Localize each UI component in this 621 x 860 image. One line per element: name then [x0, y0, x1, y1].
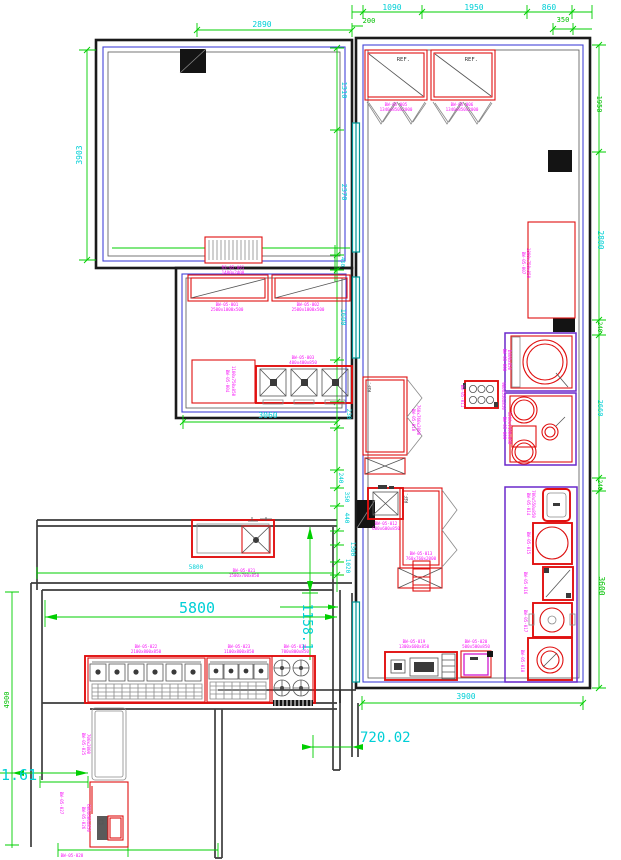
dim-3900: 3900 [456, 692, 475, 701]
dim-1600: 1600 [339, 309, 347, 326]
tag-dishtable: BW-05-016 [523, 572, 528, 595]
dim-240-b: 240 [596, 480, 603, 491]
dim-350-top: 350 [557, 16, 570, 24]
room-mid-left-wall [176, 268, 352, 418]
tag-smallunit-2: 600x600x850 [86, 804, 91, 832]
round-worktable [533, 523, 572, 564]
room-upper-left-wall [96, 40, 352, 268]
ref-label-2: REF. [465, 57, 478, 63]
refrigerator-2: REF. [431, 50, 495, 124]
walls [31, 38, 590, 858]
column-right-wall-2 [553, 318, 575, 332]
floor-plan-svg: 2890 1090 1950 860 200 350 3903 1310 237… [0, 0, 621, 860]
tag-sinkl-2: 1500x700x850 [229, 573, 260, 578]
dim-2890: 2890 [252, 20, 271, 29]
tag-wok-2: 1200x1100x850 [507, 412, 512, 445]
tag-unita-2: 1300x600x850 [399, 644, 430, 649]
dim-860: 860 [542, 3, 557, 12]
tag-bottom-2: BW-05-028 [61, 853, 84, 858]
wok-range [505, 393, 576, 465]
tag-refmid2-2: 760x760x2000 [406, 556, 437, 561]
dim-1950-right: 1950 [595, 96, 603, 113]
dim-450: 450 [339, 257, 345, 267]
tag-smallunit-1: BW-05-026 [81, 807, 86, 830]
bottom-unit-b [461, 651, 493, 677]
dim-2370: 2370 [340, 184, 348, 201]
dim-240-mid: 240 [337, 473, 344, 484]
tag-wok-1: BW-05-009 [502, 417, 507, 440]
equipment-mid-left [188, 237, 352, 404]
column-right-wall-1 [548, 150, 572, 172]
gas-range-round [272, 656, 313, 706]
dim-3060: 3060 [258, 411, 277, 420]
dim-440: 440 [343, 513, 350, 524]
tag-sinkmid-2: 600x600x850 [372, 526, 400, 531]
dim-1090: 1090 [382, 3, 401, 12]
range-6-burner [88, 658, 205, 702]
equipment-tags: RS-05-001 1400x2400 BW-05-001 2500x1000x… [59, 102, 536, 858]
dim-200: 200 [363, 17, 376, 25]
cook-line [85, 656, 315, 706]
dim-1310: 1310 [340, 82, 348, 99]
range-4-burner [207, 658, 270, 702]
dim-240-a: 240 [596, 322, 603, 333]
roller-shutter [205, 237, 262, 263]
tag-cook2-2: 1100x800x850 [224, 649, 255, 654]
tag-sinkr-2: 700x550x850 [531, 490, 536, 518]
dim-230: 230 [345, 409, 352, 420]
dim-5800-big: 5800 [179, 599, 215, 617]
tag-refmid-2: 760x760x2000 [416, 405, 421, 436]
sink-mid [368, 485, 403, 519]
room-upper-right-wall [356, 38, 590, 688]
tag-cook3-2: 700x800x850 [281, 649, 309, 654]
dim-5800-small: 5800 [189, 564, 204, 571]
tag-roundtable: BW-05-015 [526, 532, 531, 555]
tag-shutter-2: 1400x2400 [222, 270, 245, 275]
ref-label-4: REF. [404, 493, 409, 503]
dim-4900: 4900 [3, 692, 11, 709]
dim-3903: 3903 [75, 145, 84, 164]
dim-1300: 1300 [349, 542, 356, 557]
dim-2660: 2660 [596, 400, 604, 417]
refrigerator-1: REF. [365, 50, 427, 124]
equipment-upper-right: REF. REF. [363, 50, 577, 682]
tag-hood1-2: 2500x1000x500 [211, 307, 244, 312]
sink-lower-left [192, 517, 274, 557]
column-top-left [180, 49, 206, 73]
burner-square-3 [322, 369, 348, 404]
tag-kettle-1: BW-05-008 [502, 349, 507, 372]
exhaust-hood-1 [188, 275, 268, 301]
sink-right [543, 489, 570, 521]
tag-prep-2: 1100x750x850 [231, 366, 236, 397]
tag-hood2-2: 2500x1000x500 [292, 307, 325, 312]
bottom-unit-a [385, 652, 457, 680]
tag-doorl-2: 700x2000 [86, 734, 91, 755]
tag-worktable-1: BW-05-007 [521, 252, 526, 275]
floor-plan-canvas: 2890 1090 1950 860 200 350 3903 1310 237… [0, 0, 621, 860]
tall-cabinet [92, 708, 126, 780]
tag-sinkr-1: BW-05-014 [526, 493, 531, 516]
mixer [529, 603, 575, 637]
dim-1950-top: 1950 [464, 3, 483, 12]
burner-square-1 [260, 369, 286, 404]
stockpot-burners [256, 366, 352, 404]
dim-3600: 3600 [597, 576, 606, 595]
dim-1020: 1020 [344, 559, 351, 574]
tag-machine: BW-05-018 [520, 650, 525, 673]
tag-worktable-2: 1800x750x850 [526, 248, 531, 279]
small-appliance-bay [90, 782, 128, 847]
tag-refmid-1: BW-05-010 [411, 409, 416, 432]
ref-label-1: REF. [397, 57, 410, 63]
tag-stove6l: BW-05-011 [460, 385, 465, 408]
dim-720: 720.02 [360, 730, 411, 746]
exhaust-hood-2 [272, 275, 350, 301]
column-center-wall [357, 500, 375, 528]
ref-label-3: REF. [367, 382, 372, 392]
tag-bottom-1: BW-05-027 [59, 792, 64, 815]
floor-machine [528, 638, 572, 680]
tag-prep-1: BW-05-004 [225, 370, 230, 393]
tag-cook1-2: 2100x800x850 [131, 649, 162, 654]
boiling-kettle [505, 333, 576, 391]
tag-stockpot-2: 400x400x850 [289, 360, 317, 365]
dim-350-mid: 350 [343, 492, 350, 503]
tag-unitb-2: 500x500x850 [462, 644, 490, 649]
tag-ref2-2: 1340x850x2000 [446, 107, 479, 112]
tag-doorl-1: BW-05-025 [81, 733, 86, 756]
prep-table-left [192, 360, 255, 403]
tag-mixer: BW-05-017 [523, 610, 528, 633]
dim-2800: 2800 [596, 230, 605, 249]
burner-square-2 [291, 369, 317, 404]
refrigerator-mid-2: REF. [398, 488, 457, 591]
dimension-lines [0, 5, 606, 857]
stockpot-stove-6hole [463, 381, 498, 408]
tag-kettle-2: D800x850 [507, 350, 512, 371]
worktable-right [528, 222, 575, 318]
dish-table [543, 567, 573, 600]
right-service-column [505, 487, 577, 682]
tag-ref1-2: 1340x850x2000 [380, 107, 413, 112]
dim-161: 1.61 [1, 766, 37, 784]
tag-stove6r: 900x550x850 [501, 382, 506, 410]
